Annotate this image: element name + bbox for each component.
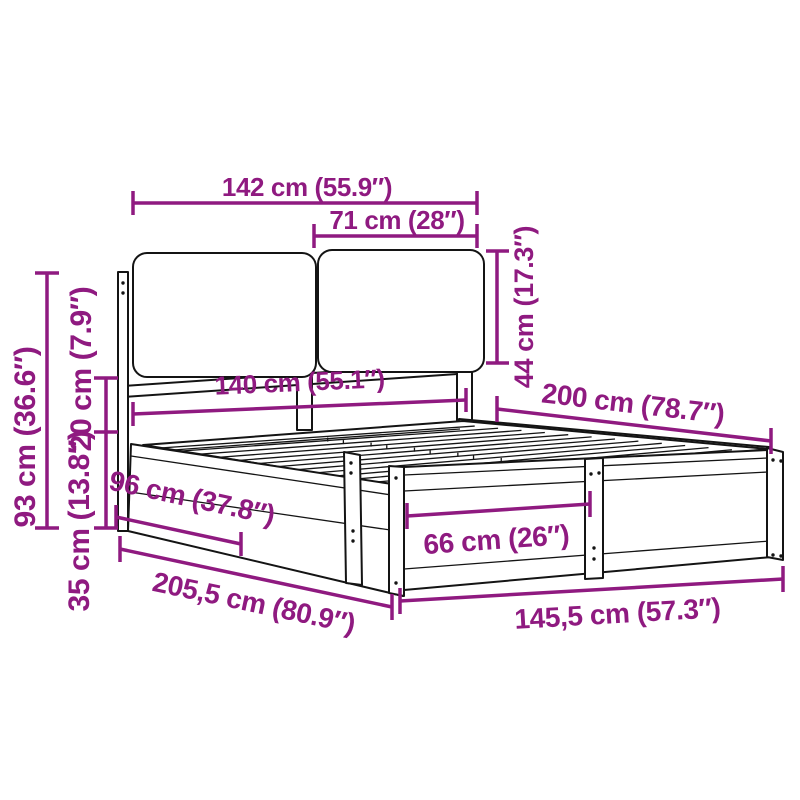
dim-cushion-height-label: 44 cm (17.3″) [509, 226, 539, 388]
dim-cushion-height: 44 cm (17.3″) [486, 226, 539, 388]
dim-cushion-width-label: 71 cm (28″) [329, 205, 464, 235]
foot-panel [404, 448, 783, 590]
dim-headboard-height-label: 93 cm (36.6″) [9, 347, 42, 528]
dim-mattress-width-label: 140 cm (55.1″) [214, 363, 385, 400]
foot-corner-board-right [767, 448, 783, 560]
corner-leg [389, 466, 404, 596]
dim-cushion-width: 71 cm (28″) [314, 205, 477, 248]
side-panel-mid-post [344, 452, 362, 585]
dim-frame-height-label: 35 cm (13.8″) [63, 431, 96, 612]
bed-dimension-diagram: 142 cm (55.9″) 71 cm (28″) 44 cm (17.3″)… [0, 0, 800, 800]
dim-headboard-gap-label: 20 cm (7.9″) [65, 287, 98, 452]
dim-total-width-label: 145,5 cm (57.3″) [514, 592, 722, 635]
dim-headboard-width-label: 142 cm (55.9″) [222, 172, 392, 202]
foot-panel-mid-post [585, 458, 603, 579]
dim-mattress-length-label: 200 cm (78.7″) [540, 377, 726, 429]
dim-headboard-height: 93 cm (36.6″) [9, 273, 59, 528]
dim-gap-and-frame-height: 20 cm (7.9″) 35 cm (13.8″) [63, 287, 118, 612]
headboard-cushion-left [133, 253, 316, 377]
headboard-cushion-right [318, 250, 484, 372]
diagram-canvas: 142 cm (55.9″) 71 cm (28″) 44 cm (17.3″)… [0, 0, 800, 800]
